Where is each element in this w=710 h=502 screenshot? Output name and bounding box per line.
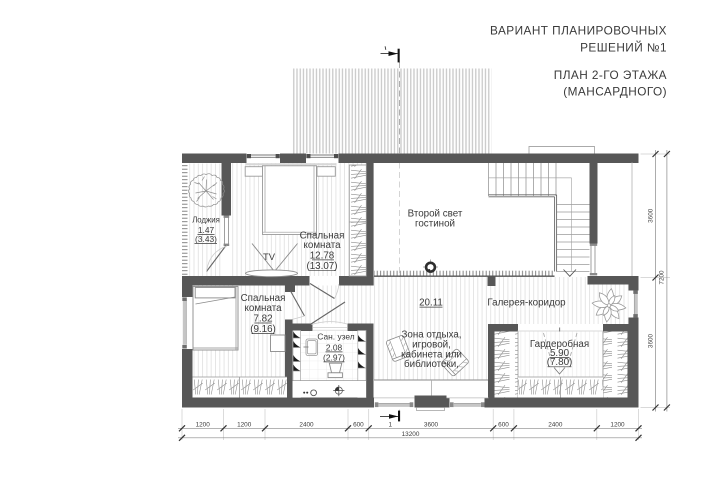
- svg-text:комната: комната: [303, 240, 341, 251]
- svg-text:3600: 3600: [424, 421, 439, 428]
- svg-text:7200: 7200: [659, 270, 666, 285]
- svg-text:Галерея-коридор: Галерея-коридор: [487, 298, 566, 309]
- svg-text:Лоджия: Лоджия: [192, 215, 220, 224]
- svg-text:библиотеки,: библиотеки,: [404, 359, 459, 370]
- svg-text:1200: 1200: [610, 421, 625, 428]
- svg-text:ВАРИАНТ ПЛАНИРОВОЧНЫХ: ВАРИАНТ ПЛАНИРОВОЧНЫХ: [490, 24, 667, 38]
- svg-text:13200: 13200: [402, 431, 420, 438]
- svg-text:комната: комната: [244, 303, 282, 314]
- svg-text:(3.43): (3.43): [195, 234, 217, 244]
- svg-text:РЕШЕНИЙ №1: РЕШЕНИЙ №1: [580, 40, 667, 54]
- svg-text:ПЛАН 2-ГО ЭТАЖА: ПЛАН 2-ГО ЭТАЖА: [554, 68, 667, 82]
- svg-text:3600: 3600: [647, 333, 654, 348]
- svg-text:(МАНСАРДНОГО): (МАНСАРДНОГО): [563, 85, 667, 99]
- svg-text:1200: 1200: [196, 421, 211, 428]
- svg-text:3600: 3600: [647, 208, 654, 223]
- svg-text:1: 1: [389, 421, 393, 428]
- svg-text:(2.97): (2.97): [323, 352, 345, 362]
- svg-text:2400: 2400: [299, 421, 314, 428]
- svg-text:600: 600: [498, 421, 509, 428]
- svg-text:2400: 2400: [548, 421, 563, 428]
- svg-text:2.08: 2.08: [326, 342, 343, 352]
- svg-text:TV: TV: [263, 251, 276, 262]
- svg-text:600: 600: [353, 421, 364, 428]
- svg-text:гостиной: гостиной: [415, 218, 455, 229]
- svg-text:Сан. узел: Сан. узел: [317, 332, 354, 342]
- svg-text:1200: 1200: [237, 421, 252, 428]
